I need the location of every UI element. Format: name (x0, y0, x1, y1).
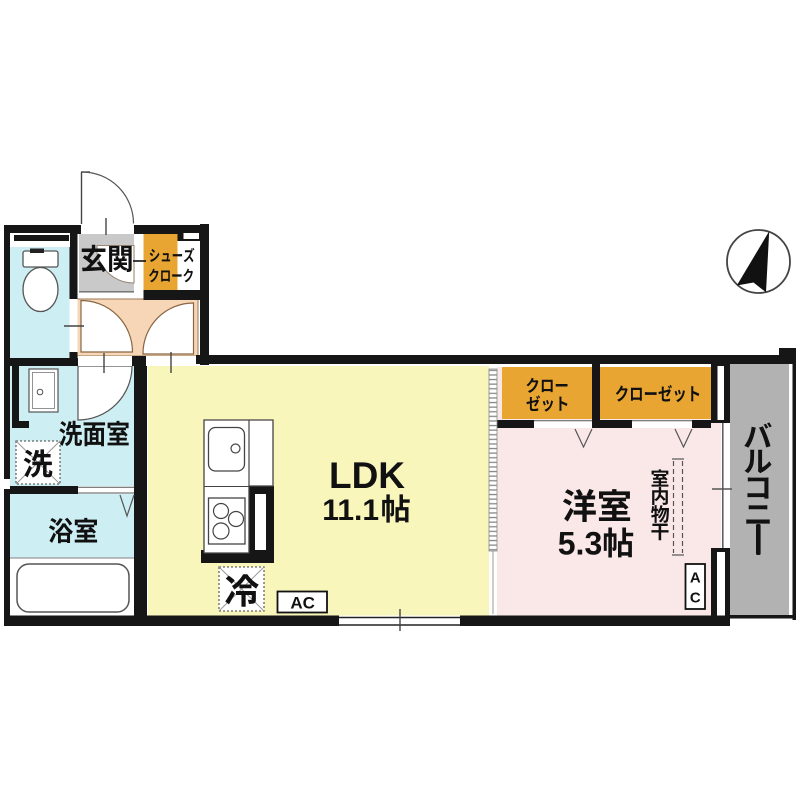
svg-text:A: A (690, 570, 701, 587)
svg-text:LDK: LDK (329, 455, 405, 496)
svg-text:AC: AC (290, 594, 315, 613)
svg-text:11.1: 11.1 (322, 494, 379, 527)
svg-text:C: C (690, 590, 701, 607)
svg-text:5.3: 5.3 (558, 526, 602, 562)
